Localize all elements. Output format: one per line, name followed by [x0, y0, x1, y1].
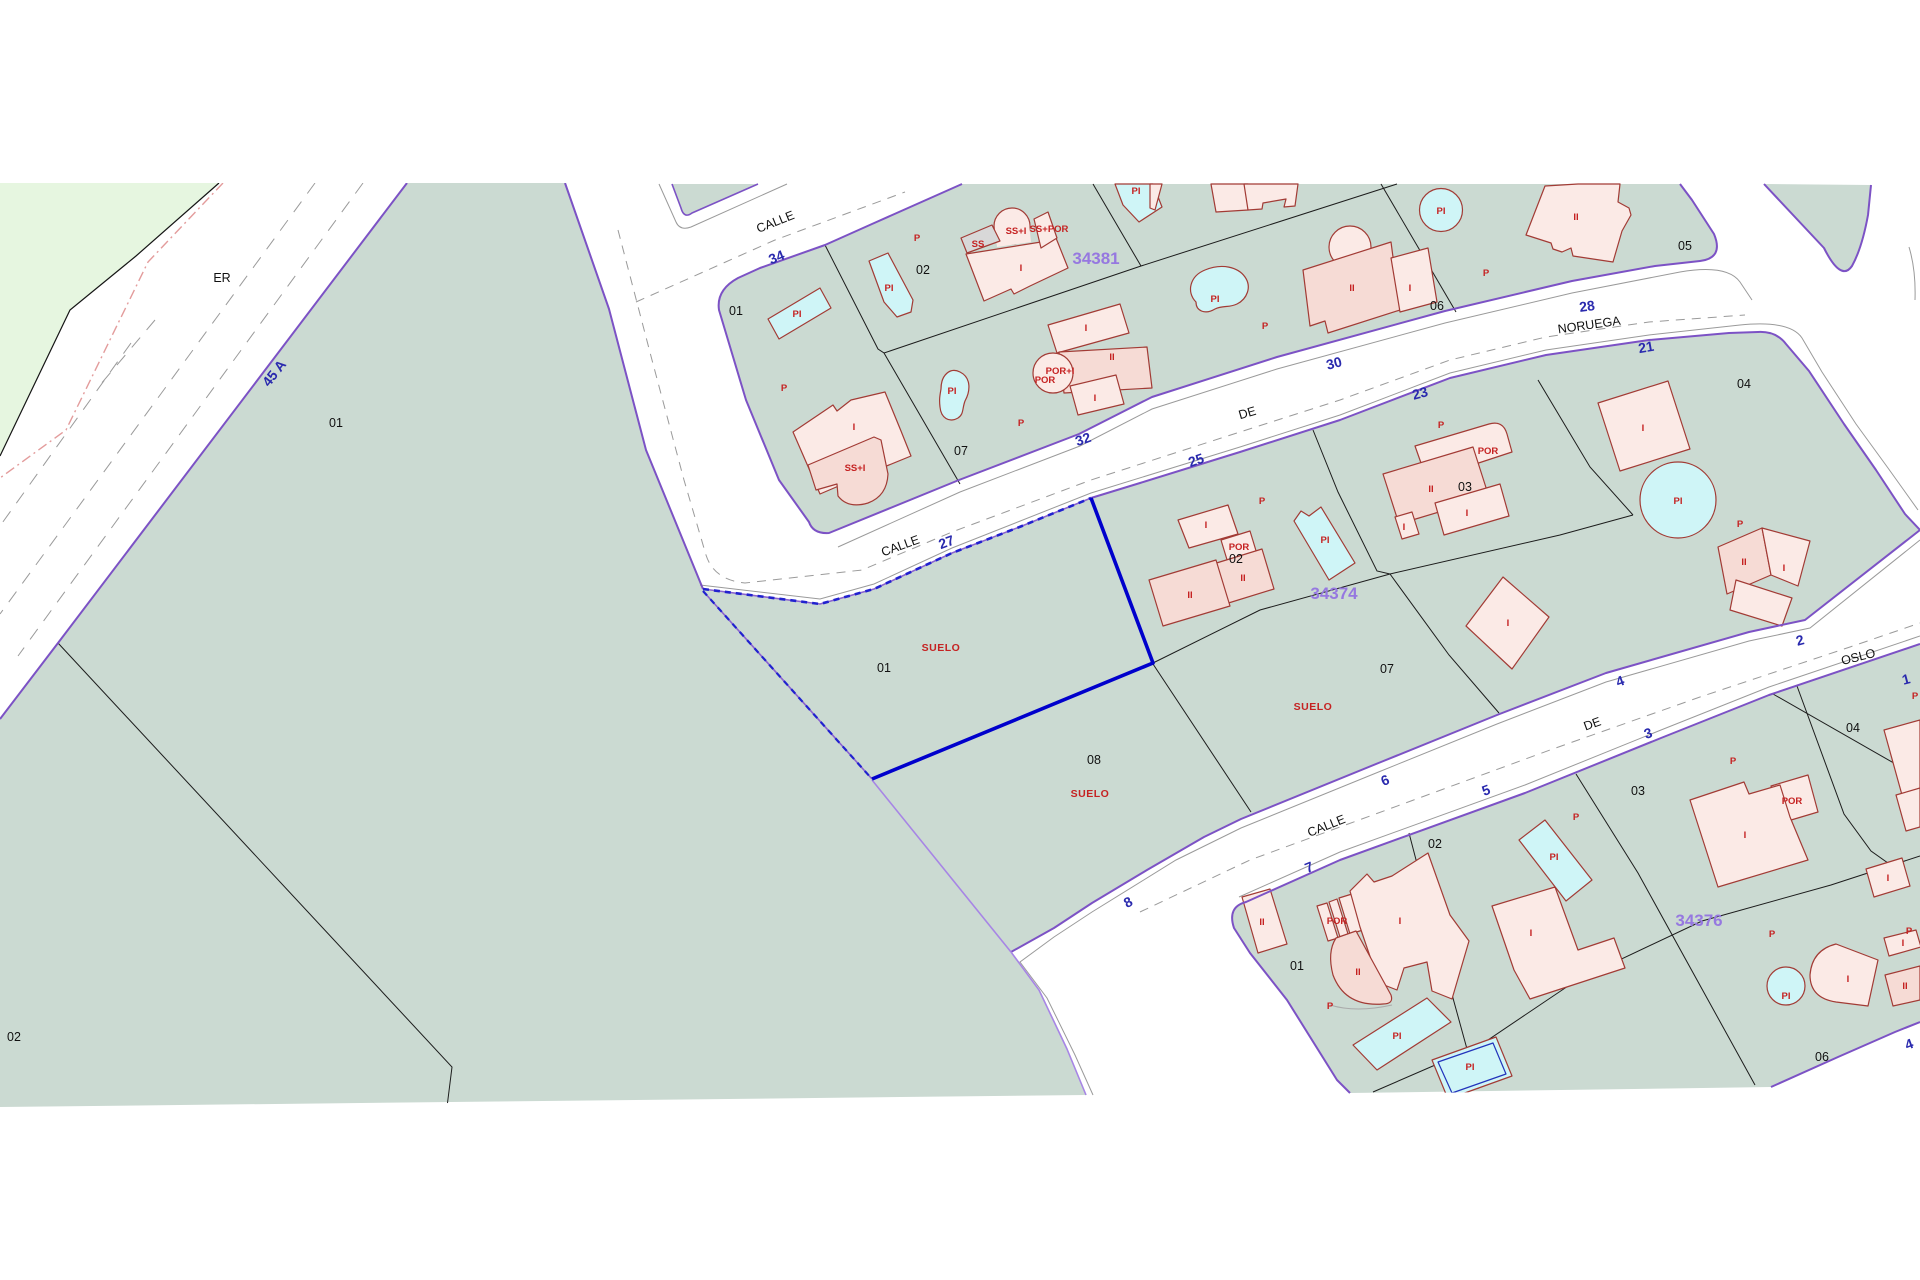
svg-text:I: I	[1020, 263, 1023, 274]
svg-text:II: II	[1240, 573, 1245, 584]
svg-text:I: I	[1530, 928, 1533, 939]
svg-text:P: P	[1737, 519, 1744, 530]
svg-text:34381: 34381	[1072, 249, 1119, 268]
svg-text:02: 02	[1229, 552, 1243, 566]
svg-text:P: P	[1769, 929, 1776, 940]
svg-text:34374: 34374	[1310, 584, 1358, 603]
svg-text:PI: PI	[885, 283, 894, 294]
svg-text:06: 06	[1815, 1050, 1829, 1064]
svg-text:SUELO: SUELO	[1071, 788, 1110, 800]
svg-text:P: P	[1483, 268, 1490, 279]
svg-text:II: II	[1259, 917, 1264, 928]
svg-text:PI: PI	[1132, 186, 1141, 197]
svg-text:P: P	[1573, 812, 1580, 823]
svg-text:01: 01	[1290, 959, 1304, 973]
svg-text:03: 03	[1631, 784, 1645, 798]
svg-text:28: 28	[1578, 297, 1596, 315]
svg-text:PI: PI	[793, 309, 802, 320]
svg-text:PI: PI	[1393, 1031, 1402, 1042]
svg-text:01: 01	[329, 416, 343, 430]
svg-text:01: 01	[877, 661, 891, 675]
svg-text:II: II	[1355, 967, 1360, 978]
svg-text:POR: POR	[1327, 916, 1348, 927]
svg-text:07: 07	[954, 444, 968, 458]
svg-text:PI: PI	[1321, 535, 1330, 546]
svg-text:21: 21	[1637, 338, 1655, 356]
svg-text:P: P	[1327, 1001, 1334, 1012]
svg-text:I: I	[1409, 283, 1412, 294]
svg-text:I: I	[1507, 618, 1510, 629]
svg-text:I: I	[1783, 563, 1786, 574]
svg-text:PI: PI	[1466, 1062, 1475, 1073]
svg-text:PI: PI	[948, 386, 957, 397]
svg-text:P: P	[781, 383, 788, 394]
svg-text:P: P	[1259, 496, 1266, 507]
svg-text:08: 08	[1087, 753, 1101, 767]
svg-text:POR: POR	[1782, 796, 1803, 807]
svg-text:SS+I: SS+I	[845, 463, 866, 474]
svg-text:SUELO: SUELO	[1294, 701, 1333, 713]
svg-text:P: P	[914, 233, 921, 244]
svg-text:P: P	[1730, 756, 1737, 767]
svg-text:ER: ER	[213, 271, 230, 285]
svg-text:PI: PI	[1437, 206, 1446, 217]
svg-text:II: II	[1109, 352, 1114, 363]
svg-text:PI: PI	[1211, 294, 1220, 305]
svg-text:PI: PI	[1550, 852, 1559, 863]
svg-text:34376: 34376	[1675, 911, 1722, 930]
svg-text:02: 02	[1428, 837, 1442, 851]
svg-text:II: II	[1187, 590, 1192, 601]
svg-text:II: II	[1573, 212, 1578, 223]
svg-text:SS+I: SS+I	[1006, 226, 1027, 237]
svg-text:06: 06	[1430, 299, 1444, 313]
svg-text:I: I	[1466, 508, 1469, 519]
svg-text:03: 03	[1458, 480, 1472, 494]
svg-text:I: I	[853, 422, 856, 433]
svg-text:II: II	[1428, 484, 1433, 495]
svg-text:SS+POR: SS+POR	[1030, 224, 1069, 235]
svg-text:I: I	[1847, 974, 1850, 985]
svg-text:SS: SS	[972, 239, 985, 250]
svg-text:I: I	[1744, 830, 1747, 841]
svg-text:I: I	[1403, 522, 1406, 533]
svg-text:I: I	[1642, 423, 1645, 434]
svg-text:P: P	[1018, 418, 1025, 429]
svg-text:04: 04	[1846, 721, 1860, 735]
svg-text:II: II	[1349, 283, 1354, 294]
svg-text:POR: POR	[1478, 446, 1499, 457]
svg-text:I: I	[1094, 393, 1097, 404]
svg-text:POR: POR	[1229, 542, 1250, 553]
svg-text:P: P	[1262, 321, 1269, 332]
svg-text:PI: PI	[1782, 991, 1791, 1002]
svg-text:PI: PI	[1674, 496, 1683, 507]
svg-text:I: I	[1887, 873, 1890, 884]
svg-text:02: 02	[7, 1030, 21, 1044]
svg-text:II: II	[1902, 981, 1907, 992]
svg-text:P: P	[1912, 691, 1919, 702]
svg-text:I: I	[1399, 916, 1402, 927]
svg-text:04: 04	[1737, 377, 1751, 391]
svg-text:I: I	[1085, 323, 1088, 334]
svg-text:POR: POR	[1035, 375, 1056, 386]
svg-text:II: II	[1741, 557, 1746, 568]
svg-text:07: 07	[1380, 662, 1394, 676]
svg-text:I: I	[1902, 938, 1905, 949]
svg-text:I: I	[1205, 520, 1208, 531]
svg-text:01: 01	[729, 304, 743, 318]
svg-text:P: P	[1438, 420, 1445, 431]
svg-text:02: 02	[916, 263, 930, 277]
svg-text:SUELO: SUELO	[922, 642, 961, 654]
svg-text:P: P	[1906, 926, 1913, 937]
svg-text:05: 05	[1678, 239, 1692, 253]
